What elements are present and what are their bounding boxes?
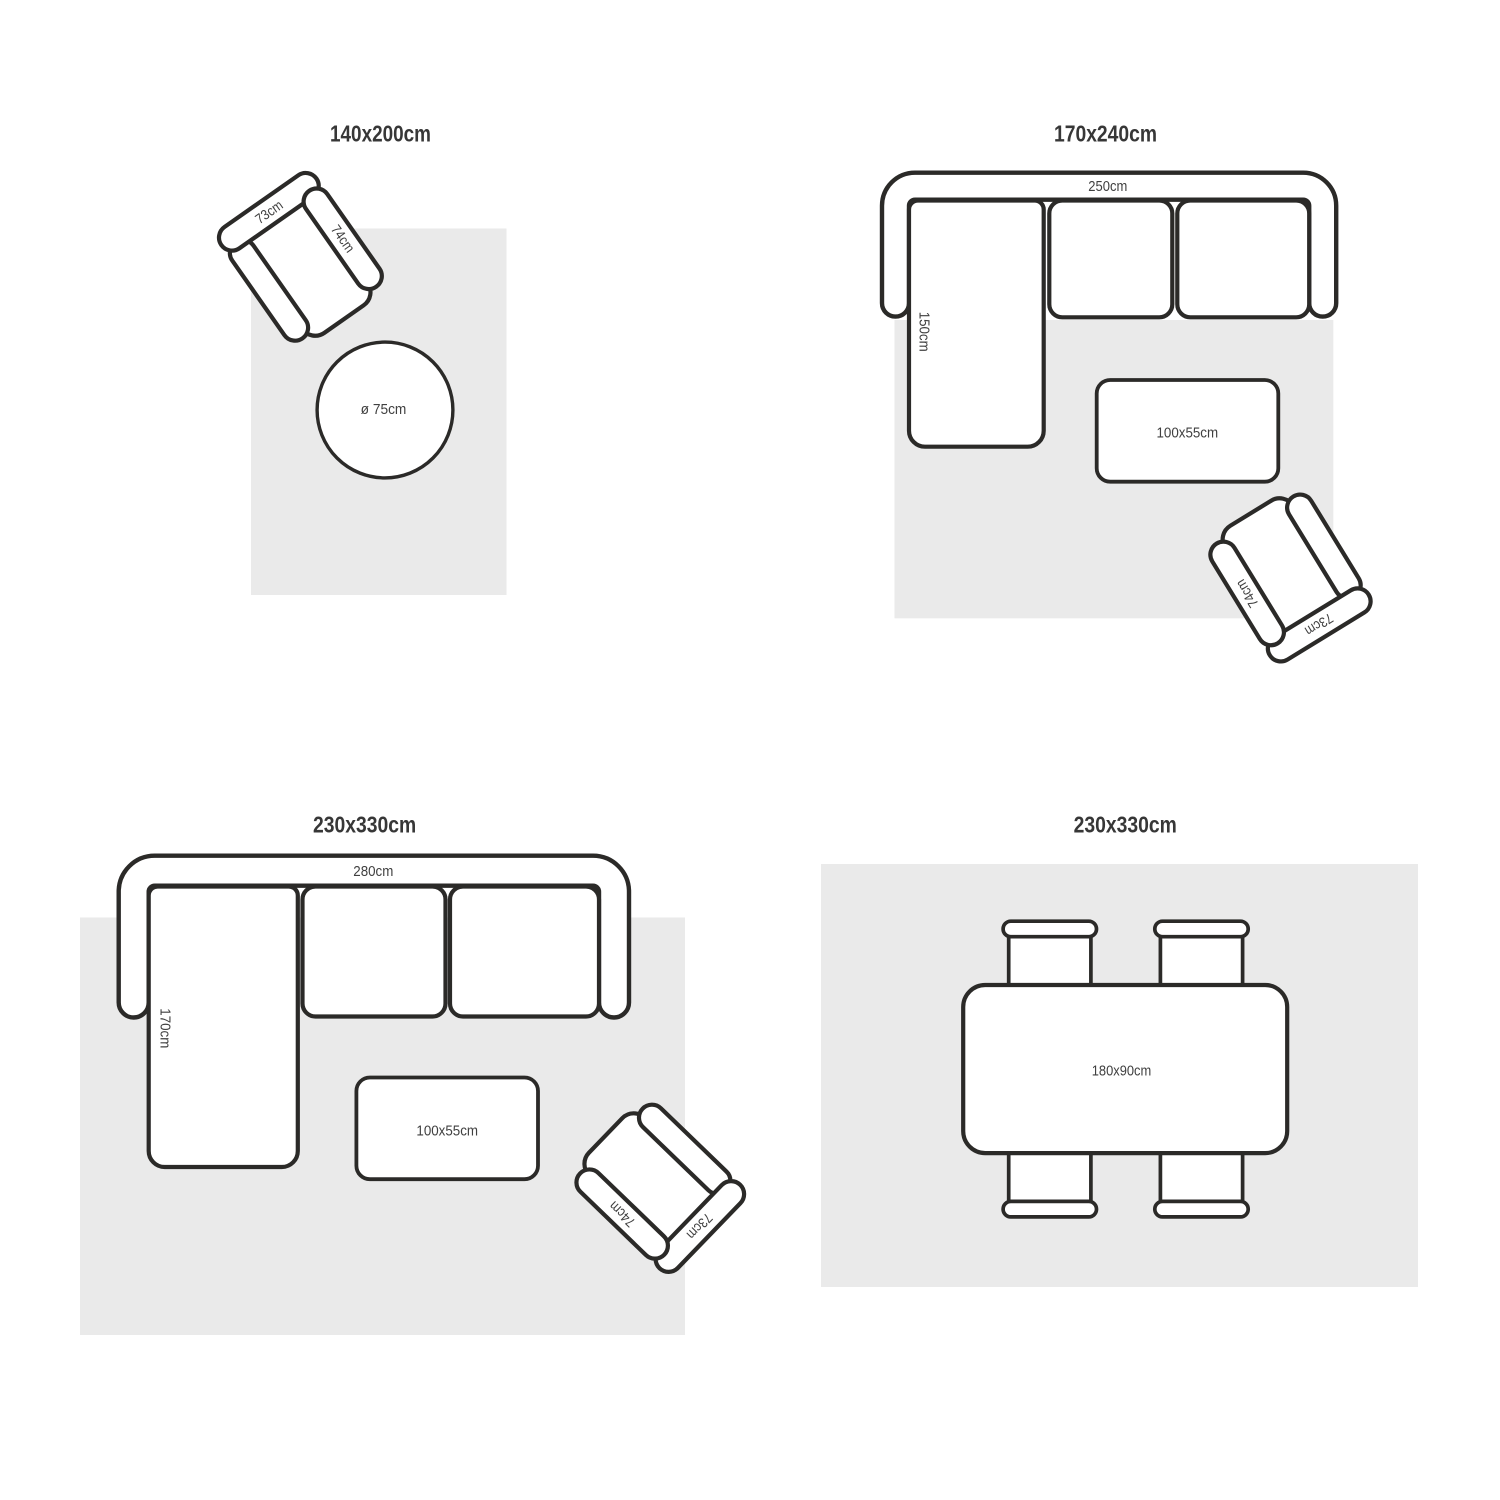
svg-text:170cm: 170cm xyxy=(156,1008,172,1048)
svg-text:250cm: 250cm xyxy=(1088,179,1127,195)
svg-text:280cm: 280cm xyxy=(353,864,393,880)
svg-text:100x55cm: 100x55cm xyxy=(416,1124,478,1140)
svg-text:100x55cm: 100x55cm xyxy=(1157,426,1219,442)
svg-text:150cm: 150cm xyxy=(916,312,932,352)
svg-text:170x240cm: 170x240cm xyxy=(1054,121,1157,147)
svg-text:ø 75cm: ø 75cm xyxy=(361,402,407,418)
svg-text:230x330cm: 230x330cm xyxy=(313,811,416,837)
svg-text:140x200cm: 140x200cm xyxy=(330,121,431,147)
svg-text:230x330cm: 230x330cm xyxy=(1074,811,1177,837)
svg-text:180x90cm: 180x90cm xyxy=(1092,1064,1152,1080)
